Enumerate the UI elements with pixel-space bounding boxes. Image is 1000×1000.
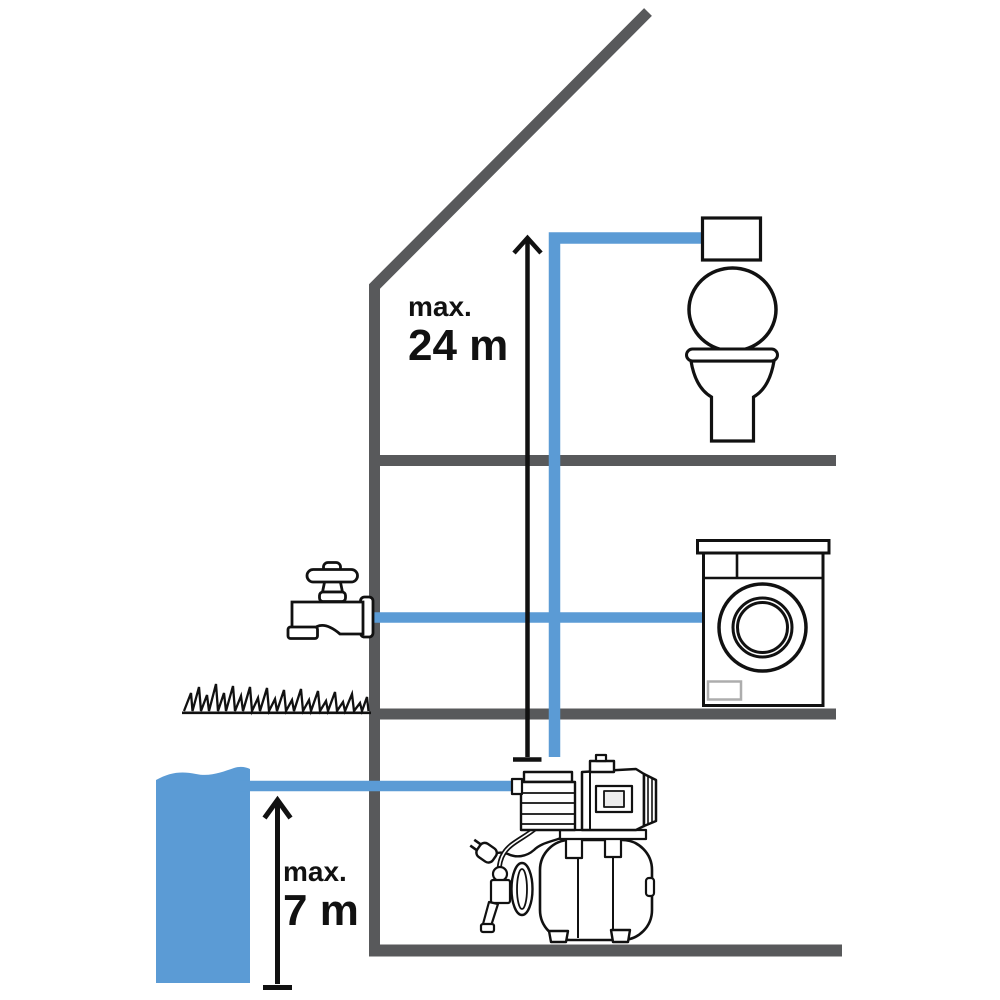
- delivery-head-value: 24 m: [408, 324, 508, 368]
- pump-head-body: [521, 782, 575, 830]
- suction-head-prefix: max.: [283, 858, 359, 886]
- power-plug-icon: [468, 836, 499, 865]
- toilet-cistern: [703, 218, 761, 260]
- delivery-head-arrow: [513, 238, 542, 760]
- toilet-base: [691, 361, 774, 441]
- grass-blades: [184, 684, 369, 711]
- outlet-cap: [596, 755, 606, 761]
- tap-spout-tip: [288, 627, 318, 639]
- washing-machine-icon: [698, 541, 830, 706]
- pressure-tank: [540, 840, 652, 940]
- motor-end-cap: [644, 774, 656, 826]
- terminal-box-inner: [604, 791, 624, 807]
- switch-lever: [483, 902, 498, 926]
- tank-flange: [512, 863, 533, 915]
- washer-lid: [698, 541, 830, 554]
- tank-nipple: [646, 878, 654, 896]
- outlet-fitting: [590, 761, 614, 772]
- grass-icon: [182, 684, 371, 713]
- water-source: [156, 767, 250, 983]
- toilet-icon: [687, 218, 778, 441]
- riser-pipe-to-toilet: [555, 238, 703, 757]
- tank-foot-left: [549, 931, 568, 942]
- tap-collar: [320, 592, 346, 602]
- delivery-head-label: max. 24 m: [408, 293, 508, 368]
- diagram-canvas: [0, 0, 1000, 1000]
- toilet-lid: [689, 268, 776, 351]
- tap-handle-bar: [307, 570, 358, 583]
- tank-foot-right: [611, 930, 630, 942]
- pump-head-top-plate: [524, 772, 572, 782]
- toilet-seat: [687, 349, 778, 361]
- garden-tap-icon: [288, 563, 373, 639]
- delivery-head-prefix: max.: [408, 293, 508, 321]
- washer-filter-hatch: [708, 682, 741, 700]
- suction-head-label: max. 7 m: [283, 858, 359, 933]
- pump-installation-diagram: max. 24 m max. 7 m: [0, 0, 1000, 1000]
- motor-mount: [560, 830, 646, 839]
- pressure-switch: [491, 880, 510, 903]
- suction-head-value: 7 m: [283, 889, 359, 933]
- switch-foot: [481, 924, 494, 932]
- suction-inlet-port: [512, 779, 522, 794]
